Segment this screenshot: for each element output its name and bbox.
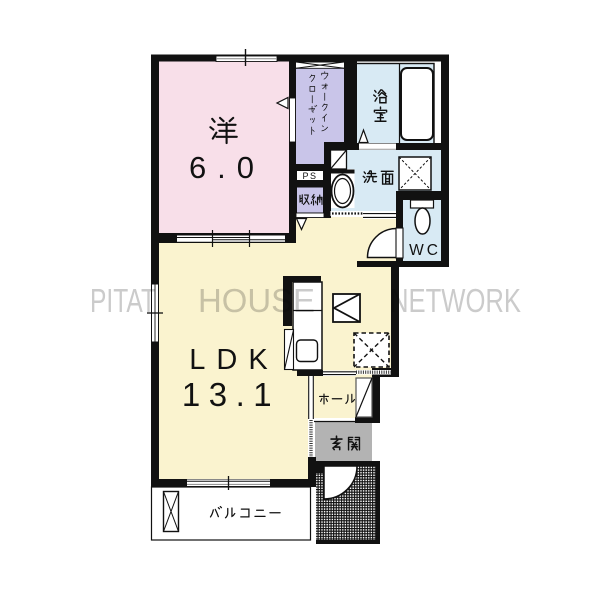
svg-text:LDK: LDK	[189, 344, 278, 376]
svg-text:6.0: 6.0	[189, 150, 265, 185]
svg-text:NETWORK: NETWORK	[390, 282, 521, 319]
svg-text:PITAT: PITAT	[90, 282, 156, 319]
svg-text:13.1: 13.1	[182, 376, 280, 413]
svg-text:HOUSE: HOUSE	[198, 282, 315, 319]
svg-text:PS: PS	[302, 171, 317, 181]
svg-text:WC: WC	[409, 242, 441, 259]
